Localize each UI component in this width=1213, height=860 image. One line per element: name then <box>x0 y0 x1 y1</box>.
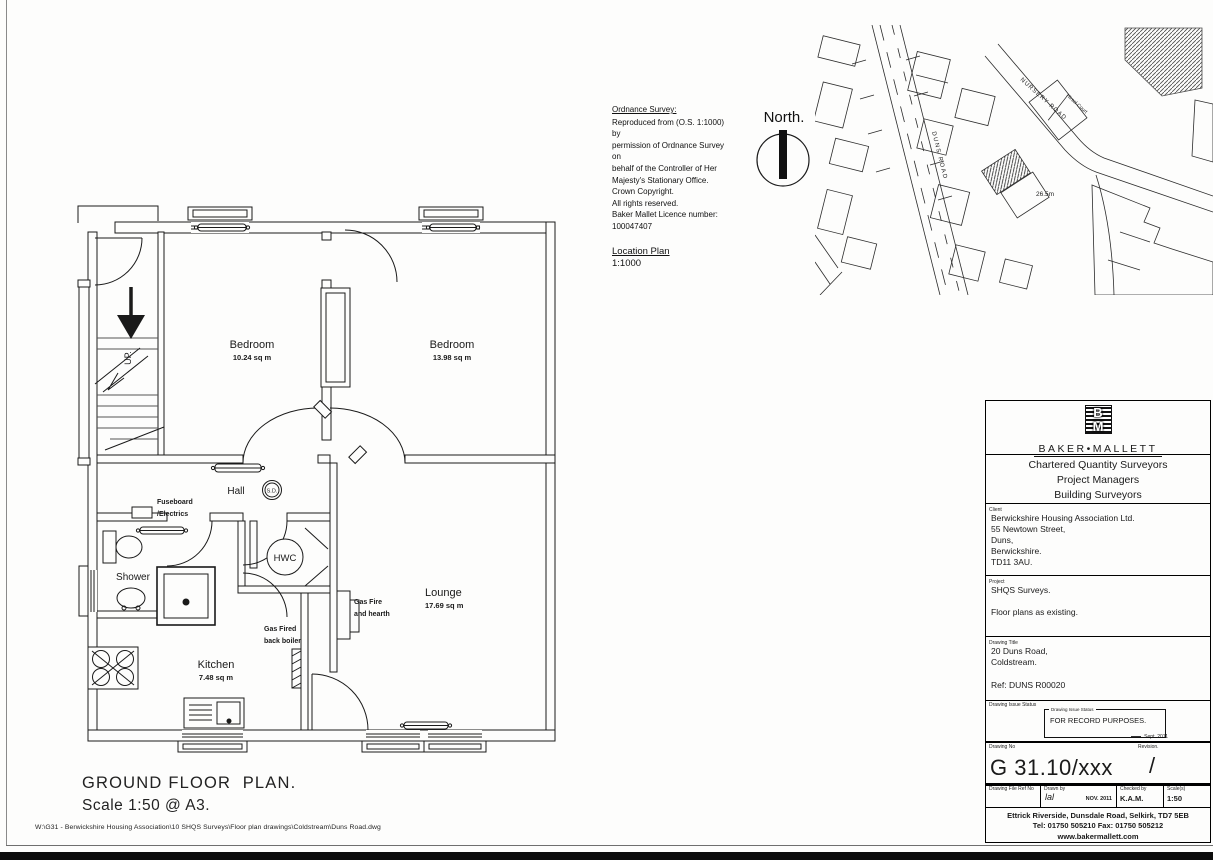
windows <box>79 207 486 752</box>
stair-direction-arrow: UP. <box>117 287 145 365</box>
issue-status-section: Drawing Issue Status Drawing Issue Statu… <box>986 701 1210 742</box>
page-edge-bottom-line <box>6 845 1213 846</box>
company-logo-section: B M BAKER•MALLETT <box>986 401 1210 455</box>
logo-letter-m: M <box>1086 420 1111 433</box>
fuseboard-label-line2: /Electrics <box>157 511 188 518</box>
sink-icon <box>184 698 244 728</box>
hwc-label: HWC <box>274 553 297 564</box>
os-note-line: Crown Copyright. <box>612 186 734 198</box>
hall-label: Hall <box>227 486 244 497</box>
fuseboard-label-line1: Fuseboard <box>157 499 193 506</box>
scale-cell: Scale(s) 1:50 <box>1164 785 1210 807</box>
drawing-number: G 31.10/xxx <box>990 755 1113 781</box>
meta-row: Drawing File Ref No Drawn by lal NOV. 20… <box>986 785 1210 808</box>
drawing-sheet: UP. <box>0 0 1213 860</box>
os-licence-number: 100047407 <box>612 221 734 233</box>
basin-icon <box>117 588 145 610</box>
os-note-line: Baker Mallet Licence number: <box>612 209 734 221</box>
revision-value: / <box>1149 753 1155 779</box>
ordnance-survey-note: Ordnance Survey: Reproduced from (O.S. 1… <box>612 104 734 233</box>
company-tagline: Chartered Quantity Surveyors Project Man… <box>986 455 1210 504</box>
bedroom1-area: 10.24 sq m <box>233 353 272 362</box>
map-buildings <box>815 28 1213 295</box>
toilet-icon <box>103 531 142 563</box>
drawn-by-cell: Drawn by lal NOV. 2011 <box>1041 785 1117 807</box>
company-footer: Ettrick Riverside, Dunsdale Road, Selkir… <box>986 808 1210 843</box>
tagline-line: Project Managers <box>986 473 1210 488</box>
plan-caption: GROUND FLOOR PLAN. Scale 1:50 @ A3. <box>82 774 296 815</box>
drawing-title-label: Drawing Title <box>989 638 1018 650</box>
north-label: North. <box>764 109 805 126</box>
bedroom1-label: Bedroom <box>230 339 275 351</box>
boiler-label-line2: back boiler <box>264 638 301 645</box>
client-label: Client <box>989 505 1002 516</box>
location-plan-scale: 1:1000 <box>612 258 670 270</box>
ground-floor-plan: UP. <box>75 192 567 770</box>
issue-box-label: Drawing Issue Status <box>1049 707 1096 712</box>
location-map: DUNS ROAD NURSERY ROAD Hirsel Court 26.5… <box>815 25 1213 295</box>
page-edge-bottom-strip <box>0 852 1213 860</box>
title-block: B M BAKER•MALLETT Chartered Quantity Sur… <box>985 400 1211 843</box>
project-line: SHQS Surveys. <box>991 585 1210 596</box>
checked-by-label: Checked by <box>1120 786 1146 792</box>
scale-value: 1:50 <box>1167 794 1182 803</box>
tagline-line: Building Surveyors <box>986 488 1210 503</box>
os-note-line: permission of Ordnance Survey on <box>612 140 734 163</box>
back-boiler-icon <box>292 649 301 688</box>
hob-icon <box>88 647 138 689</box>
file-ref-cell: Drawing File Ref No <box>986 785 1041 807</box>
plan-caption-title: GROUND FLOOR PLAN. <box>82 774 296 793</box>
company-address: Ettrick Riverside, Dunsdale Road, Selkir… <box>986 811 1210 822</box>
fuseboard-icon <box>132 507 152 518</box>
file-ref-label: Drawing File Ref No <box>989 786 1034 792</box>
up-label: UP. <box>123 351 133 365</box>
os-note-line: Reproduced from (O.S. 1:1000) by <box>612 117 734 140</box>
gas-fire-label-line2: and hearth <box>354 611 390 618</box>
client-line: Duns, <box>991 535 1210 546</box>
project-label: Project <box>989 577 1005 588</box>
room-labels: Bedroom 10.24 sq m Bedroom 13.98 sq m Ha… <box>116 339 474 682</box>
baker-mallett-logo-icon: B M <box>1085 405 1112 434</box>
exterior-walls <box>78 206 555 741</box>
plan-caption-scale: Scale 1:50 @ A3. <box>82 797 296 815</box>
checked-by-cell: Checked by K.A.M. <box>1117 785 1164 807</box>
lounge-area: 17.69 sq m <box>425 601 464 610</box>
drawing-title-line: Coldstream. <box>991 657 1210 669</box>
hwc-icon: HWC <box>267 539 303 575</box>
drawing-number-label: Drawing No <box>989 744 1015 750</box>
boiler-label-line1: Gas Fired <box>264 626 296 633</box>
os-note-line: Majesty's Stationary Office. <box>612 175 734 187</box>
revision-label: Revision. <box>1138 744 1159 750</box>
location-plan-caption: Location Plan 1:1000 <box>612 246 670 270</box>
drawing-number-section: Drawing No G 31.10/xxx Revision. / <box>986 742 1210 784</box>
smoke-detector-label: S.D. <box>267 489 278 495</box>
os-note-line: behalf of the Controller of Her <box>612 163 734 175</box>
drawing-title-section: Drawing Title 20 Duns Road, Coldstream. … <box>986 637 1210 701</box>
kitchen-area: 7.48 sq m <box>199 673 234 682</box>
north-arrow: North. <box>745 100 825 195</box>
issue-date: Sept. 2011 <box>1131 734 1168 740</box>
gas-fire-label-line1: Gas Fire <box>354 599 382 606</box>
os-note-line: All rights reserved. <box>612 198 734 210</box>
shower-label: Shower <box>116 572 151 583</box>
bedroom2-area: 13.98 sq m <box>433 353 472 362</box>
hirsel-court-label: Hirsel Court <box>1065 93 1089 116</box>
project-section: Project SHQS Surveys. Floor plans as exi… <box>986 576 1210 636</box>
drawing-title-line: 20 Duns Road, <box>991 646 1210 658</box>
logo-letter-b: B <box>1086 406 1111 419</box>
location-plan-title: Location Plan <box>612 246 670 258</box>
drawn-date: NOV. 2011 <box>1086 796 1112 802</box>
scale-label: Scale(s) <box>1167 786 1185 792</box>
smoke-detector-icon: S.D. <box>263 481 282 500</box>
client-line: TD11 3AU. <box>991 557 1210 568</box>
drawing-ref: Ref: DUNS R00020 <box>991 680 1210 692</box>
bedroom2-label: Bedroom <box>430 339 475 351</box>
drawn-by-value: lal <box>1045 792 1054 802</box>
client-line: Berwickshire Housing Association Ltd. <box>991 513 1210 524</box>
tagline-line: Chartered Quantity Surveyors <box>986 458 1210 473</box>
subject-property <box>982 149 1050 218</box>
client-line: Berwickshire. <box>991 546 1210 557</box>
door-swings <box>95 230 405 730</box>
issue-status-label: Drawing Issue Status <box>989 702 1036 708</box>
kitchen-label: Kitchen <box>198 659 235 671</box>
client-line: 55 Newtown Street, <box>991 524 1210 535</box>
checked-by-value: K.A.M. <box>1120 794 1143 803</box>
client-section: Client Berwickshire Housing Association … <box>986 504 1210 576</box>
spot-height-label: 26.5m <box>1036 191 1054 198</box>
shower-tray-icon <box>157 567 215 625</box>
issue-status-value: FOR RECORD PURPOSES. <box>1050 716 1165 725</box>
interior-walls <box>97 232 555 730</box>
project-line: Floor plans as existing. <box>991 607 1210 618</box>
page-edge-left <box>6 0 7 846</box>
company-phone: Tel: 01750 505210 Fax: 01750 505212 <box>986 821 1210 832</box>
company-website: www.bakermallett.com <box>986 832 1210 843</box>
lounge-label: Lounge <box>425 587 462 599</box>
drawing-file-path: W:\G31 - Berwickshire Housing Associatio… <box>35 824 381 831</box>
ordnance-survey-title: Ordnance Survey: <box>612 104 734 116</box>
